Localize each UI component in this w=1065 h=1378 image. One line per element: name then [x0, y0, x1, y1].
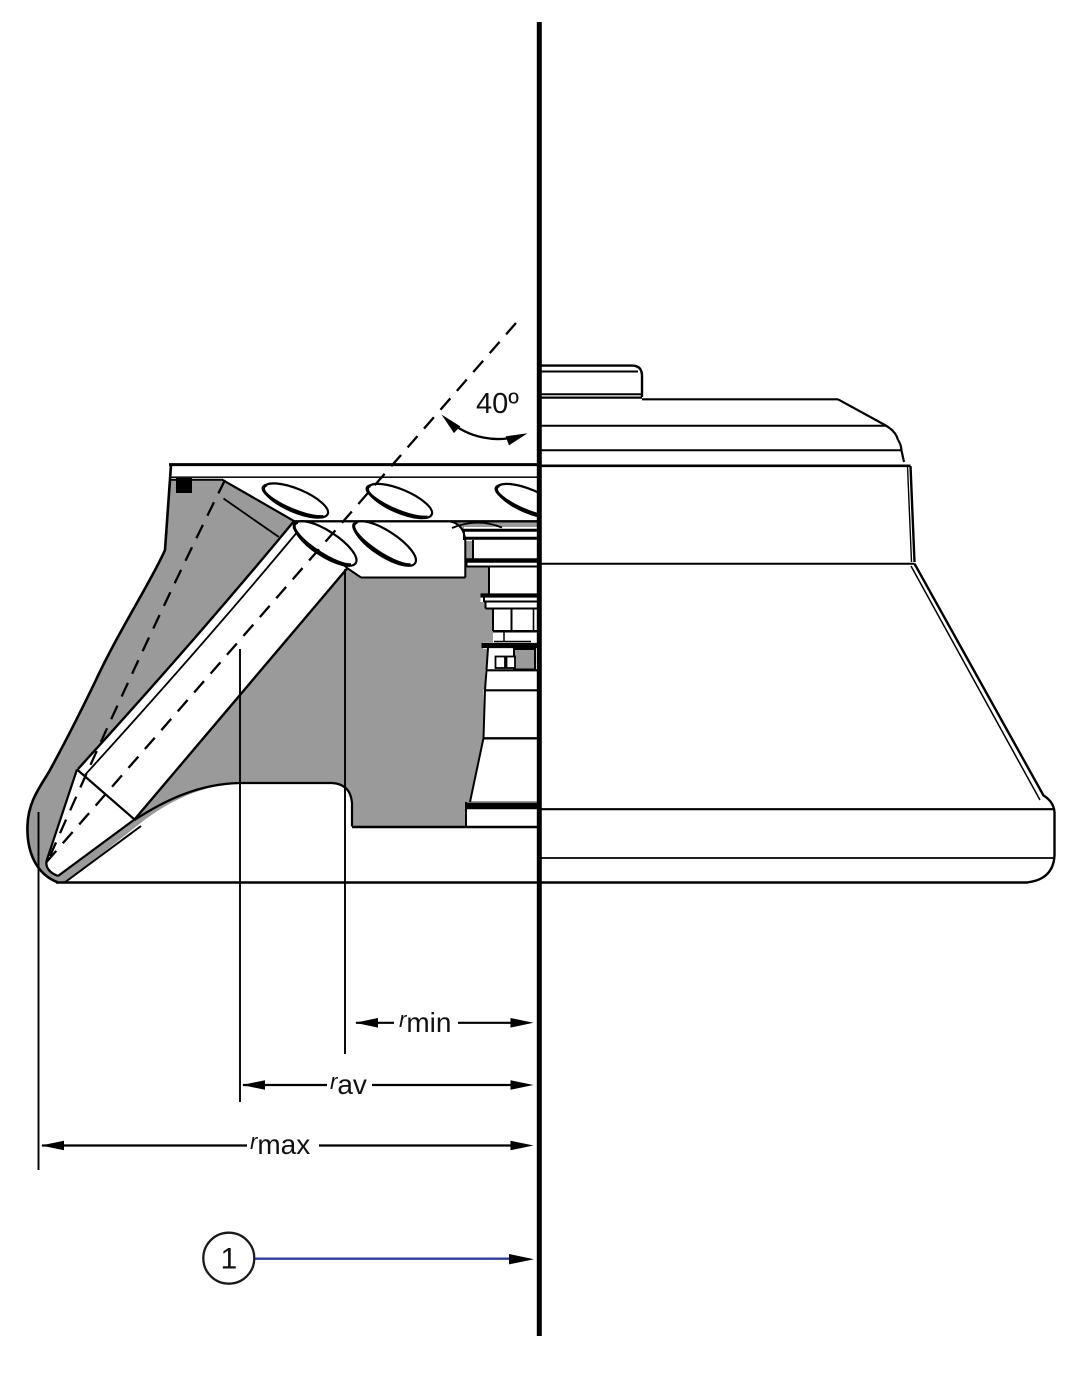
svg-text:40º: 40º	[476, 388, 519, 420]
svg-text:1: 1	[220, 1243, 237, 1276]
svg-text:rmax: rmax	[250, 1129, 310, 1160]
svg-text:rmin: rmin	[399, 1007, 451, 1038]
